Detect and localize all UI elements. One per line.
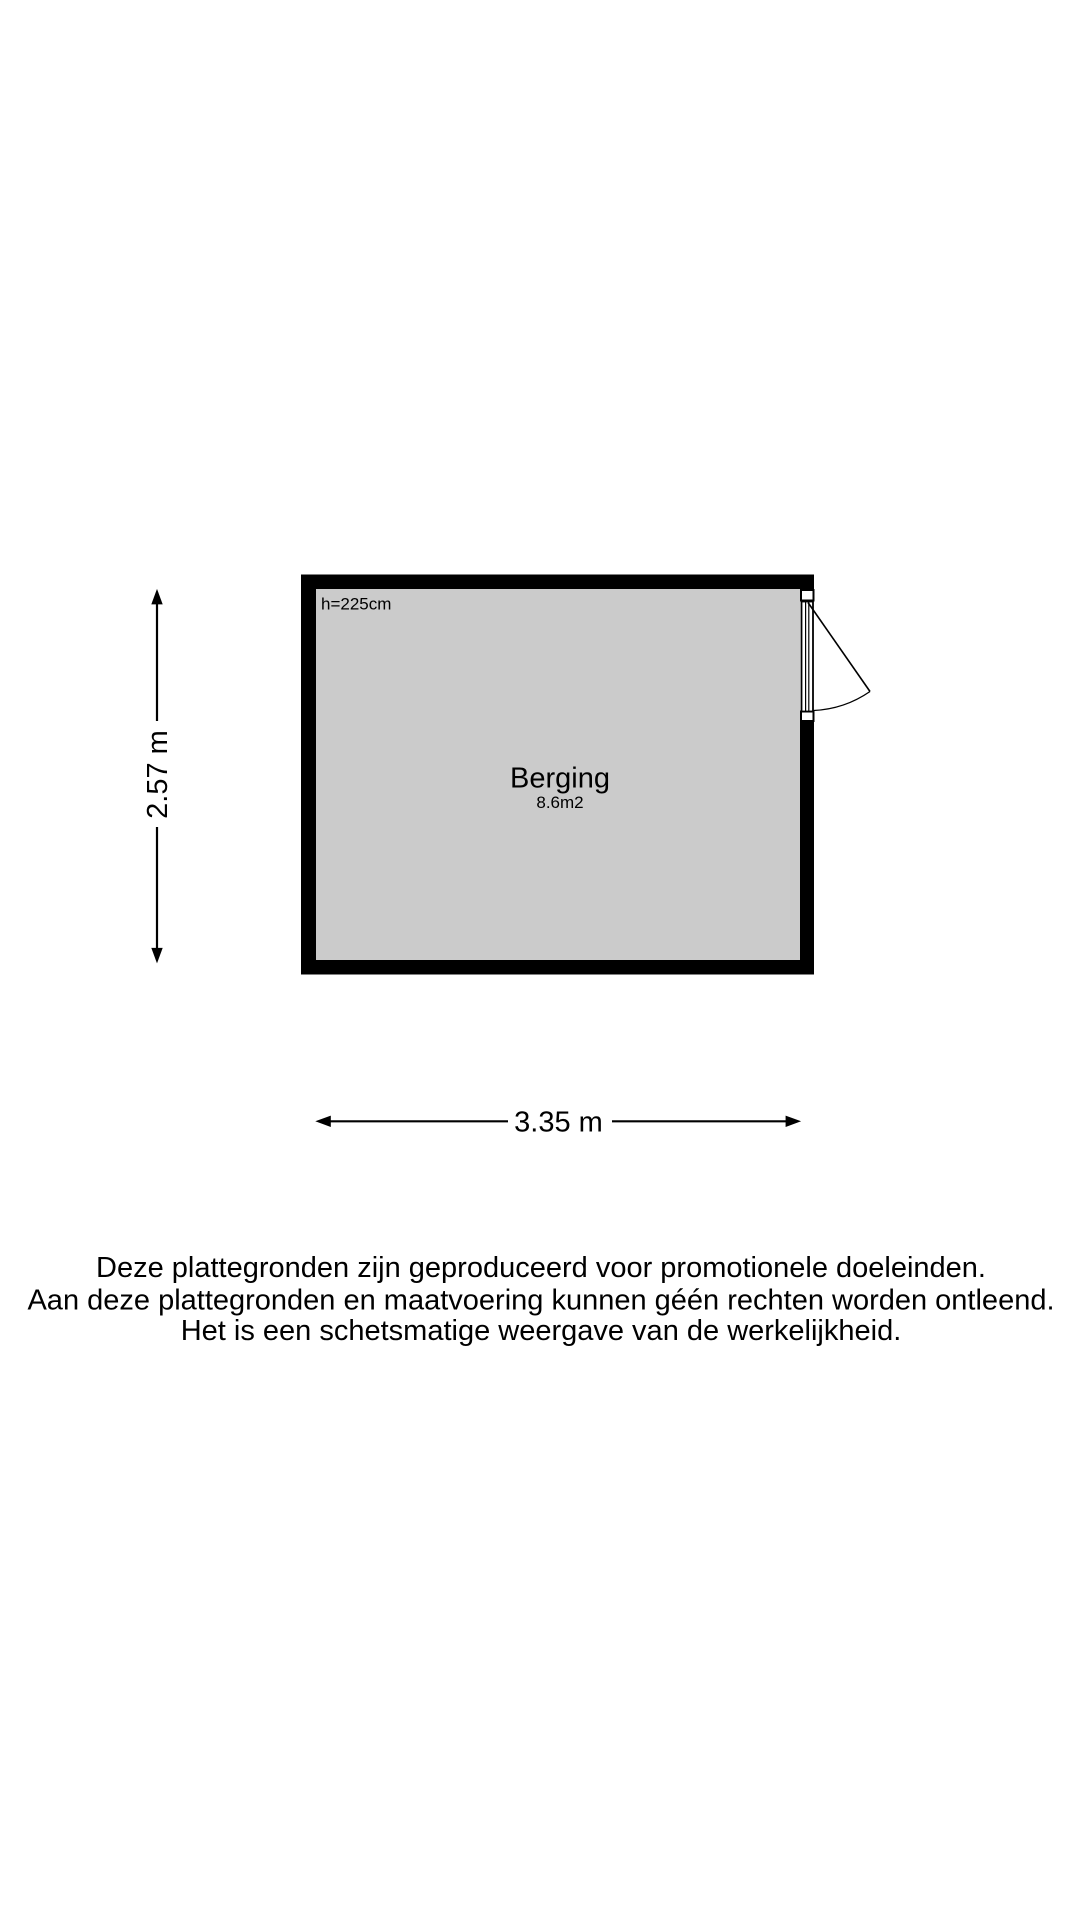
svg-text:3.35 m: 3.35 m: [514, 1107, 603, 1139]
svg-text:Aan deze plattegronden en maat: Aan deze plattegronden en maatvoering ku…: [27, 1285, 1054, 1317]
svg-text:Het is een schetsmatige weerga: Het is een schetsmatige weergave van de …: [181, 1315, 902, 1347]
svg-text:Berging: Berging: [510, 763, 610, 795]
svg-text:Deze plattegronden zijn geprod: Deze plattegronden zijn geproduceerd voo…: [96, 1252, 986, 1284]
svg-text:2.57 m: 2.57 m: [142, 730, 174, 819]
svg-text:h=225cm: h=225cm: [321, 595, 391, 614]
svg-text:8.6m2: 8.6m2: [536, 793, 583, 812]
